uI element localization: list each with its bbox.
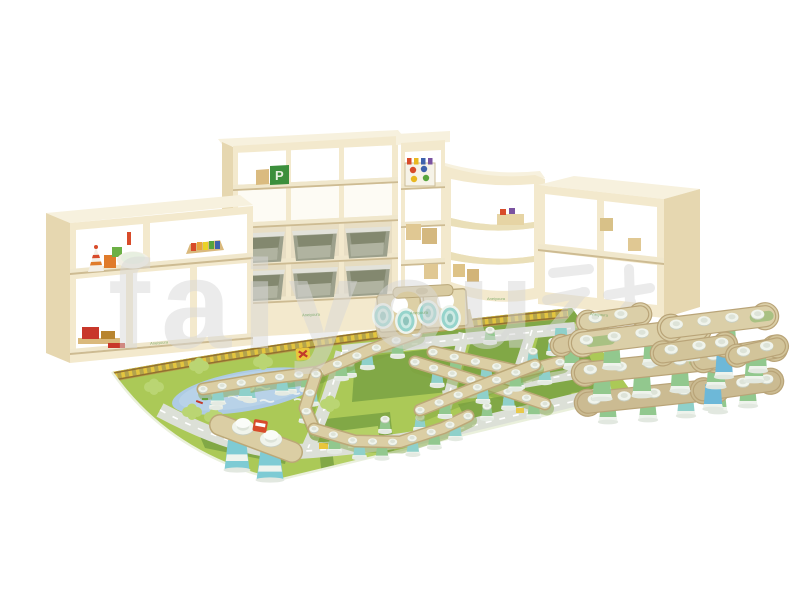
svg-text:Aneiyoura: Aneiyoura <box>302 312 321 318</box>
svg-text:faiyou: faiyou <box>108 234 545 375</box>
svg-text:Aneiyoura: Aneiyoura <box>410 310 429 316</box>
svg-text:Aneiyoura: Aneiyoura <box>487 296 506 301</box>
svg-text:P: P <box>275 168 284 183</box>
